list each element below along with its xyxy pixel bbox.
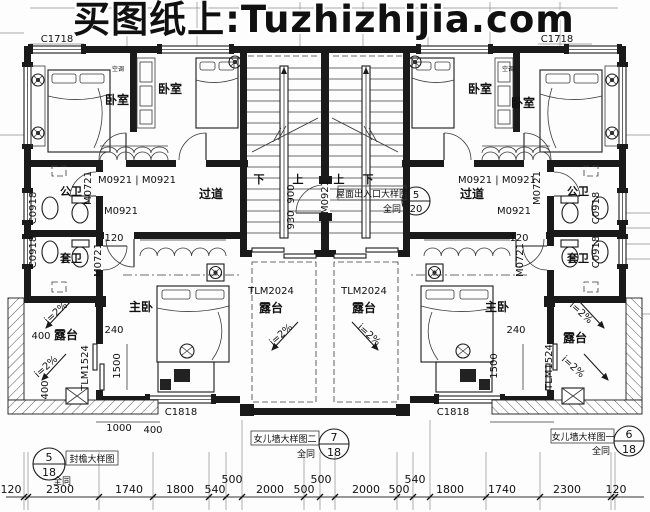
door-label-m0921-pair: M0921 | M0921 — [458, 175, 536, 186]
room-label-corridor: 过道 — [460, 186, 484, 201]
bottom-dim: 1800 — [166, 483, 194, 496]
right-unit-plan-shapes — [321, 44, 642, 422]
window-label-c0918: C0918 — [591, 236, 602, 268]
slope-note: i=2% — [559, 354, 586, 380]
bottom-dim: 2300 — [46, 483, 74, 496]
door-label-tlm1524: TLM1524 — [544, 344, 555, 391]
door-label-tlm2024: TLM2024 — [340, 286, 387, 297]
closet-scallops-master — [140, 240, 226, 256]
sliding-door-tlm2024 — [252, 248, 316, 258]
bottom-dim-raised: 540 — [405, 473, 426, 486]
callout-eave-label: 封檐大样图 — [69, 453, 114, 465]
dim-240: 240 — [104, 325, 123, 336]
window-label-c0918: C0918 — [28, 192, 39, 224]
parapet-hatch-left — [8, 298, 24, 400]
room-label-bedroom: 卧室 — [468, 81, 492, 96]
window-label-c1718-left: C1718 — [41, 34, 73, 45]
slope-note: i=2% — [355, 322, 382, 348]
door-arc — [99, 133, 126, 160]
window-label-c0918: C0918 — [28, 236, 39, 268]
room-label-public-bath: 公卫 — [567, 185, 589, 198]
stair-label-down: 下 — [254, 173, 265, 186]
sliding-door-tlm1524 — [93, 344, 104, 390]
room-label-terrace: 露台 — [563, 330, 587, 345]
bottom-dim-raised: 500 — [311, 473, 332, 486]
callout-parapet-two-note: 全同 — [297, 448, 315, 460]
room-label-master: 主卧 — [129, 299, 153, 314]
site-watermark: 买图纸上:Tuzhizhijia.com — [73, 0, 575, 41]
window-label-c1818: C1818 — [437, 407, 469, 418]
dim-1000: 1000 — [106, 423, 131, 434]
door-label-tlm1524: TLM1524 — [80, 345, 91, 392]
toilet-public — [42, 196, 89, 223]
wardrobe — [137, 58, 155, 128]
room-label-bedroom: 卧室 — [158, 81, 182, 96]
bottom-dim: 120 — [1, 483, 22, 496]
dim-120: 120 — [509, 233, 528, 244]
window-c1718 — [28, 44, 86, 54]
callout-eave: 5 18 封檐大样图 全同 — [33, 448, 118, 487]
door-label-tlm2024: TLM2024 — [247, 286, 294, 297]
callout-eave-num: 5 — [46, 451, 53, 464]
bottom-dim: 1740 — [115, 483, 143, 496]
dim-1500: 1500 — [112, 353, 123, 378]
room-label-terrace: 露台 — [352, 300, 376, 315]
door-label-m0921: M0921 — [497, 206, 531, 217]
callout-roof-access-num: 5 — [413, 190, 419, 201]
dim-400: 400 — [31, 331, 50, 342]
callout-parapet-one-den: 18 — [622, 443, 636, 456]
door-label-m0721: M0721 — [93, 243, 104, 277]
dim-120: 120 — [104, 233, 123, 244]
dim-400: 400 — [143, 425, 162, 436]
room-label-corridor: 过道 — [199, 186, 223, 201]
callout-parapet-two-label: 女儿墙大样图二 — [253, 433, 316, 445]
door-label-m0721: M0721 — [515, 243, 526, 277]
bottom-dim: 1800 — [436, 483, 464, 496]
bed-master — [157, 286, 229, 362]
door-label-m0921-center: M0921 — [320, 180, 331, 214]
door-label-m0921-pair: M0921 | M0921 — [98, 175, 176, 186]
floor-plan-drawing: 屋面出入口大样图 全同 5 20 5 18 封檐大样图 全同 女儿墙大样图二 7… — [0, 0, 650, 512]
callout-parapet-one-label: 女儿墙大样图一 — [551, 431, 614, 443]
slope-note: i=2% — [567, 300, 594, 326]
room-label-ensuite-bath: 套卫 — [567, 251, 589, 265]
bottom-dim: 2000 — [256, 483, 284, 496]
callout-parapet-one: 女儿墙大样图一 6 18 全同 — [551, 426, 644, 457]
room-label-terrace: 露台 — [54, 327, 78, 342]
callout-parapet-two-num: 7 — [331, 431, 338, 444]
callout-roof-access-note: 全同 — [383, 203, 401, 215]
callout-parapet-one-note: 全同 — [592, 445, 610, 457]
room-label-terrace: 露台 — [259, 300, 283, 315]
bottom-dim: 1740 — [488, 483, 516, 496]
window-top-inner — [157, 44, 234, 54]
floor-plan-page: 屋面出入口大样图 全同 5 20 5 18 封檐大样图 全同 女儿墙大样图二 7… — [0, 0, 650, 512]
callout-parapet-two-den: 18 — [327, 446, 341, 459]
room-label-master: 主卧 — [485, 299, 509, 314]
dim-240: 240 — [506, 325, 525, 336]
stool — [180, 344, 194, 358]
bottom-dimension-labels: 120 2300 1740 1800 540 2000 500 2000 500… — [1, 473, 627, 496]
callout-parapet-one-num: 6 — [626, 428, 633, 441]
stair-label-up: 上 — [293, 172, 304, 186]
slope-note: i=2% — [33, 354, 60, 380]
bottom-dim-raised: 500 — [222, 473, 243, 486]
bottom-dim: 2000 — [352, 483, 380, 496]
slope-note: i=2% — [43, 300, 70, 326]
callout-parapet-two: 女儿墙大样图二 7 18 全同 — [251, 429, 349, 460]
dim-930: 930 — [286, 210, 297, 229]
bottom-dim: 120 — [606, 483, 627, 496]
bed-inner-bedroom — [196, 58, 238, 128]
room-label-public-bath: 公卫 — [60, 185, 82, 198]
desk — [158, 362, 214, 392]
bottom-dim: 2300 — [553, 483, 581, 496]
door-label-m0721: M0721 — [83, 171, 94, 205]
window-label-c1818: C1818 — [165, 407, 197, 418]
room-label-bedroom: 卧室 — [511, 95, 535, 110]
door-label-m0921: M0921 — [104, 206, 138, 217]
stair-label-up: 上 — [334, 172, 345, 186]
slope-note: i=2% — [268, 322, 295, 348]
callout-roof-access-label: 屋面出入口大样图 — [336, 188, 408, 200]
door-label-m0721: M0721 — [532, 171, 543, 205]
dim-900: 900 — [286, 184, 297, 203]
door-arc — [179, 133, 206, 160]
room-label-bedroom: 卧室 — [105, 92, 129, 107]
door-arc-ensuite-bath — [103, 246, 127, 270]
ac-note: 空调 — [502, 65, 514, 73]
callout-roof-access-den: 20 — [410, 204, 423, 215]
bed-outer-bedroom — [48, 70, 110, 152]
room-label-ensuite-bath: 套卫 — [60, 251, 82, 265]
stair-label-down: 下 — [363, 173, 374, 186]
dim-400: 400 — [40, 380, 51, 399]
dim-1500: 1500 — [489, 353, 500, 378]
window-label-c0918: C0918 — [591, 192, 602, 224]
ac-note: 空调 — [112, 65, 124, 73]
